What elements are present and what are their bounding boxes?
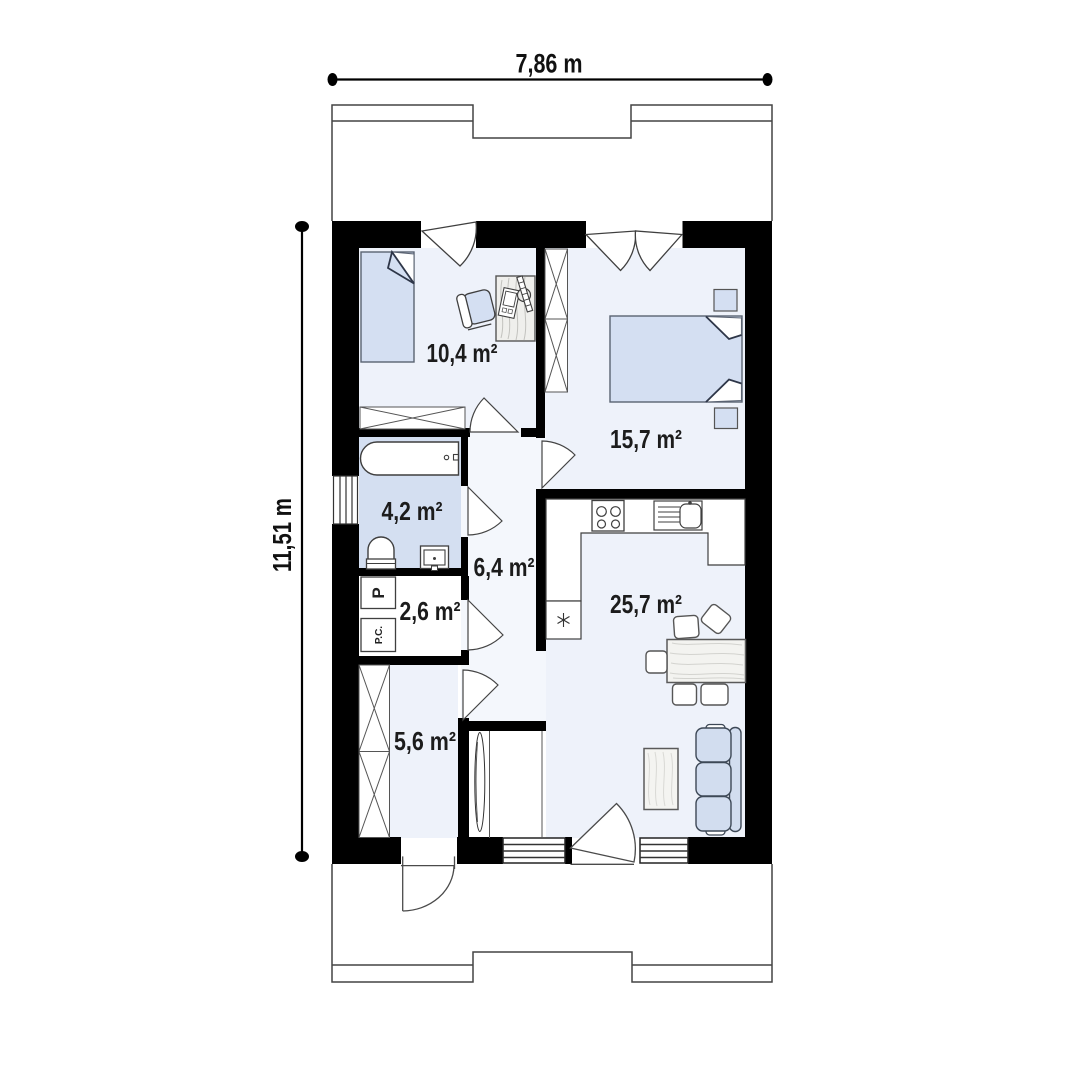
svg-text:2,6 m²: 2,6 m²: [400, 596, 461, 626]
svg-text:P.C.: P.C.: [374, 626, 385, 644]
svg-text:25,7 m²: 25,7 m²: [610, 589, 682, 619]
svg-text:15,7 m²: 15,7 m²: [610, 424, 682, 454]
svg-text:11,51 m: 11,51 m: [269, 498, 297, 572]
svg-text:7,86 m: 7,86 m: [516, 49, 583, 79]
svg-text:6,4 m²: 6,4 m²: [474, 552, 535, 582]
svg-text:10,4 m²: 10,4 m²: [427, 338, 498, 368]
svg-text:5,6 m²: 5,6 m²: [394, 726, 456, 756]
svg-text:4,2 m²: 4,2 m²: [382, 496, 443, 526]
svg-text:P: P: [369, 587, 388, 598]
